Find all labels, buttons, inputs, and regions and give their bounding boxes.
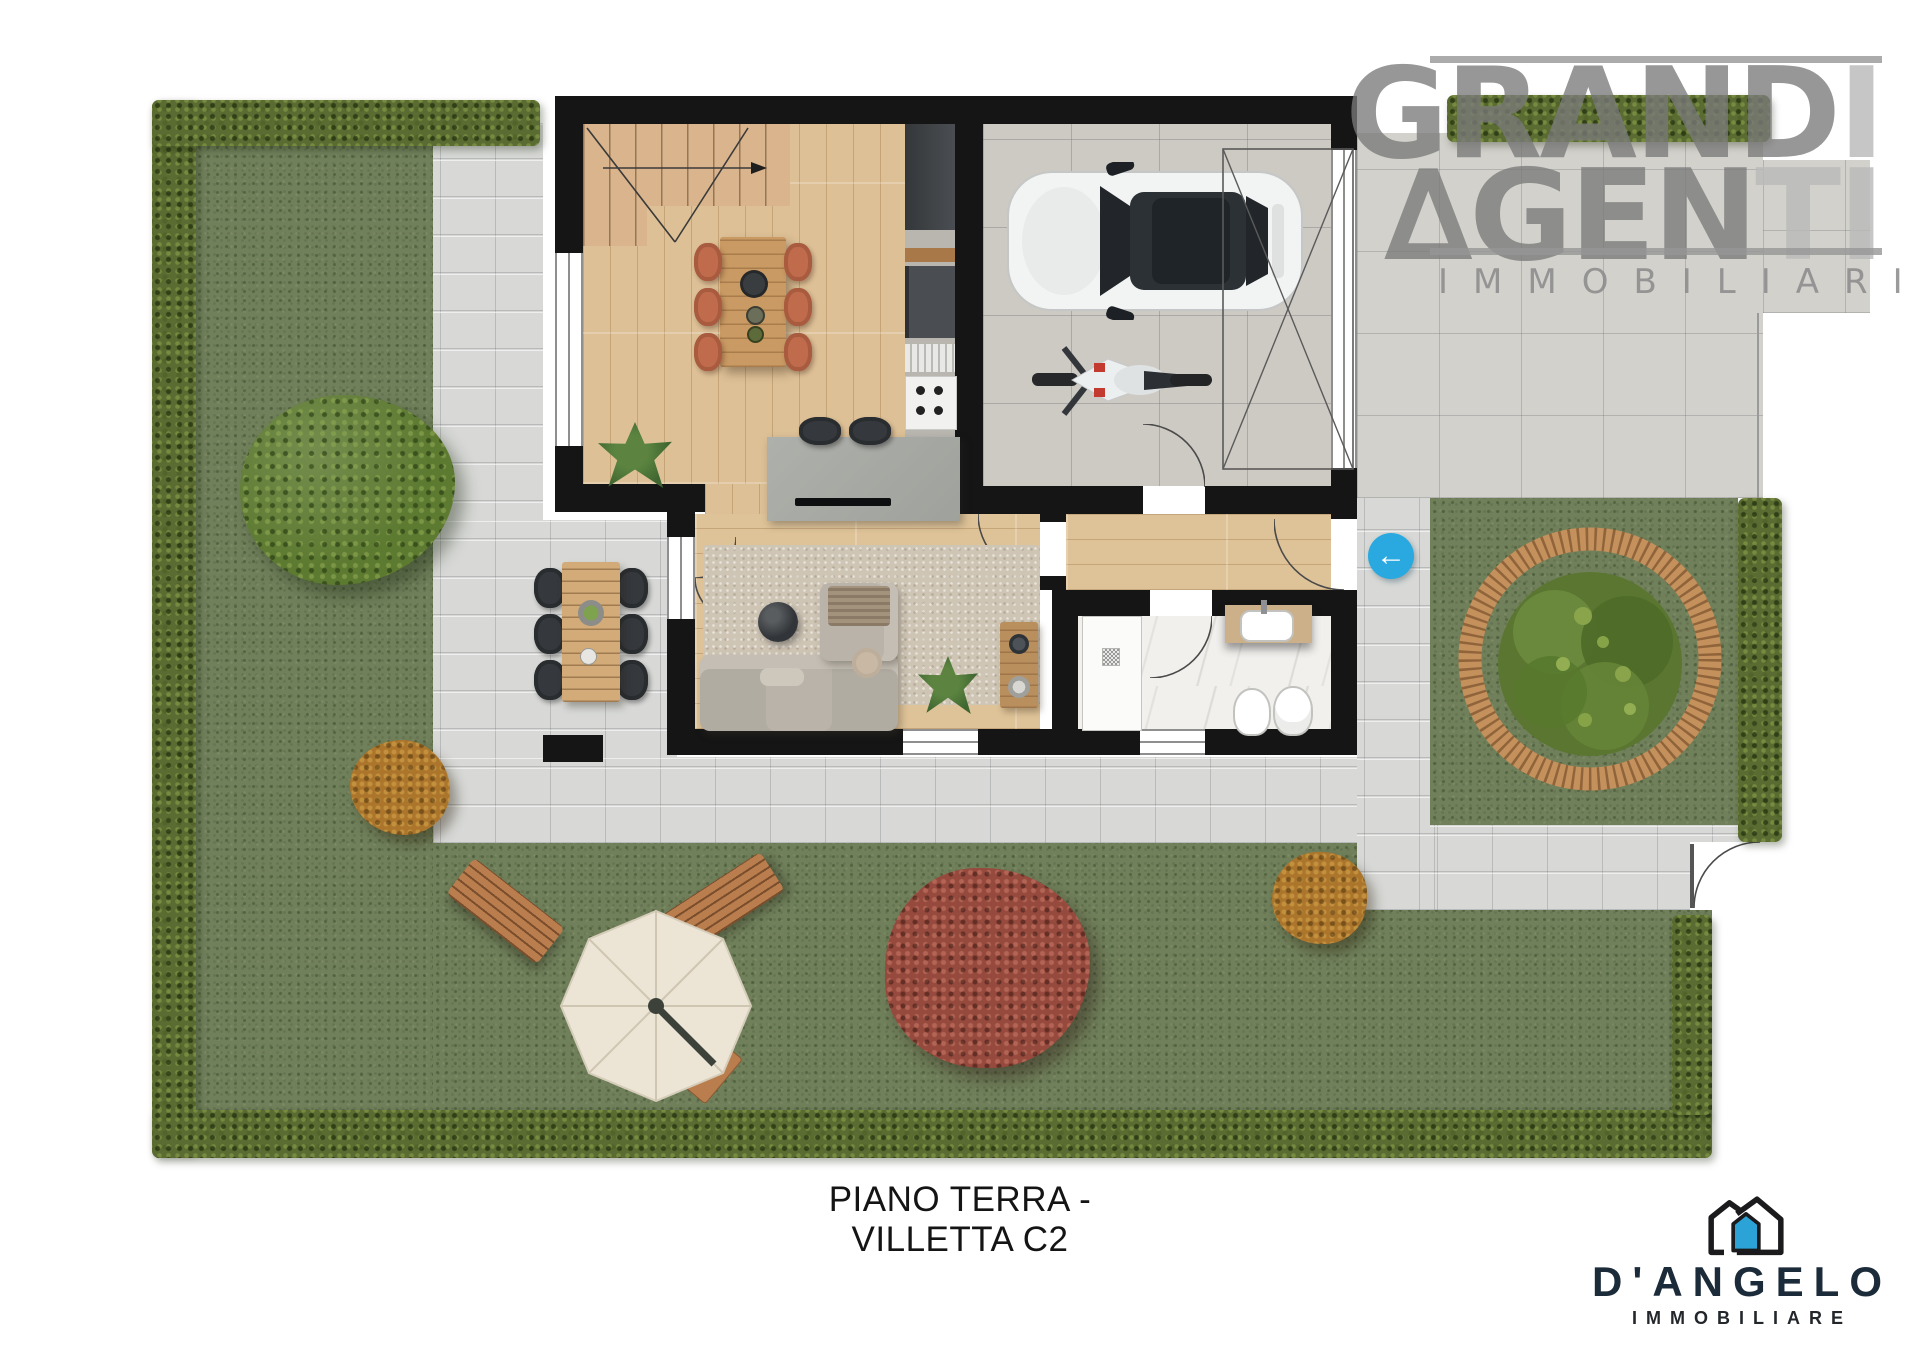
entrance-arrow-icon: ← [1368, 533, 1414, 579]
staircase-direction-arrow [583, 124, 793, 246]
outdoor-chair [616, 614, 648, 654]
watermark-rule-bottom [1430, 248, 1882, 255]
agency-logo: D'ANGELO IMMOBILIARE [1570, 1186, 1914, 1336]
sofa-blanket [828, 586, 890, 626]
entrance-arrow-glyph: ← [1376, 539, 1406, 573]
garden-gate-swing-arc [1694, 842, 1760, 908]
front-door-swing-arc [1274, 519, 1344, 590]
bathroom-window [1140, 729, 1205, 755]
oven [905, 266, 955, 338]
floor-plan-canvas: ← GRANDI ∆GENTI IMMOBILIARI PIANO TERRA … [0, 0, 1920, 1358]
wall-right-lower [1331, 590, 1357, 755]
gas-hob [905, 376, 957, 430]
wall-bottom-west [667, 729, 903, 755]
shower-tray [1082, 616, 1142, 731]
dining-table-bowl [746, 306, 765, 325]
kitchen-window [555, 253, 583, 446]
bar-stool [799, 417, 841, 445]
hedge-right-lower [1672, 915, 1712, 1115]
paved-rear-band [433, 757, 1430, 843]
bidet [1233, 688, 1271, 736]
living-hall-door-opening [1040, 522, 1066, 576]
wall-living-hall-stub-b [1040, 576, 1066, 590]
wall-top [555, 96, 1357, 124]
cutting-board [905, 248, 955, 262]
lawn-left [195, 143, 433, 1118]
plot-boundary-line [1757, 313, 1759, 500]
garage-hall-door-opening [1143, 486, 1205, 514]
parasol [556, 906, 756, 1106]
kitchen-island [767, 437, 960, 521]
console-vase-dark [1009, 634, 1029, 654]
outdoor-chair [616, 660, 648, 700]
fridge-column [905, 124, 955, 230]
bathroom-door-arc [1150, 616, 1212, 678]
agency-name: D'ANGELO [1570, 1258, 1914, 1306]
dining-chair [694, 243, 722, 281]
sofa-cushion [760, 668, 804, 686]
bath-tap [1261, 600, 1267, 614]
wall-patio-step [543, 735, 603, 762]
agency-subtitle: IMMOBILIARE [1570, 1308, 1914, 1329]
sink-grille [905, 344, 955, 372]
red-tree [885, 868, 1090, 1068]
dining-chair [784, 288, 812, 326]
wall-living-hall-stub-a [1040, 514, 1066, 522]
watermark-line3: IMMOBILIARI [1438, 262, 1920, 302]
wall-bottom-mid [978, 729, 1140, 755]
living-window [903, 729, 978, 755]
motorcycle [1028, 336, 1214, 426]
outdoor-table-cup [580, 648, 597, 665]
coffee-table [758, 602, 798, 642]
hedge-right-upper [1738, 498, 1782, 842]
plan-caption: PIANO TERRA - VILLETTA C2 [760, 1180, 1160, 1260]
dining-chair [784, 333, 812, 371]
toilet [1273, 686, 1313, 736]
dining-table-bottle [747, 326, 764, 343]
hedge-top-left [152, 100, 540, 146]
hob-burners [916, 386, 925, 395]
bar-stool [849, 417, 891, 445]
wall-left-upper [555, 124, 583, 253]
dining-table [720, 237, 786, 367]
dining-chair [694, 288, 722, 326]
dining-table-plate [740, 270, 768, 298]
dining-chair [694, 333, 722, 371]
hedge-left [152, 100, 196, 1152]
garage-hall-door-arc [1143, 424, 1205, 487]
orange-bush-right [1272, 852, 1367, 944]
bathroom-door-opening [1150, 590, 1212, 616]
console-vase-gray [1008, 676, 1030, 698]
agency-house-icon [1700, 1190, 1792, 1256]
bath-sink [1240, 610, 1294, 642]
dining-chair [784, 243, 812, 281]
tv [795, 498, 891, 506]
french-door-living [667, 537, 695, 619]
circular-bench-tree [1455, 524, 1725, 794]
outdoor-dining-table [562, 562, 620, 702]
hedge-bottom [152, 1110, 1712, 1158]
pouf [852, 648, 882, 678]
outdoor-chair [616, 568, 648, 608]
outdoor-table-plate [578, 600, 604, 626]
watermark-logo: GRANDI ∆GENTI IMMOBILIARI [1320, 48, 1886, 310]
shower-drain [1102, 648, 1120, 666]
wall-living-left-upper [667, 484, 695, 537]
wall-right-mid [1331, 468, 1357, 519]
